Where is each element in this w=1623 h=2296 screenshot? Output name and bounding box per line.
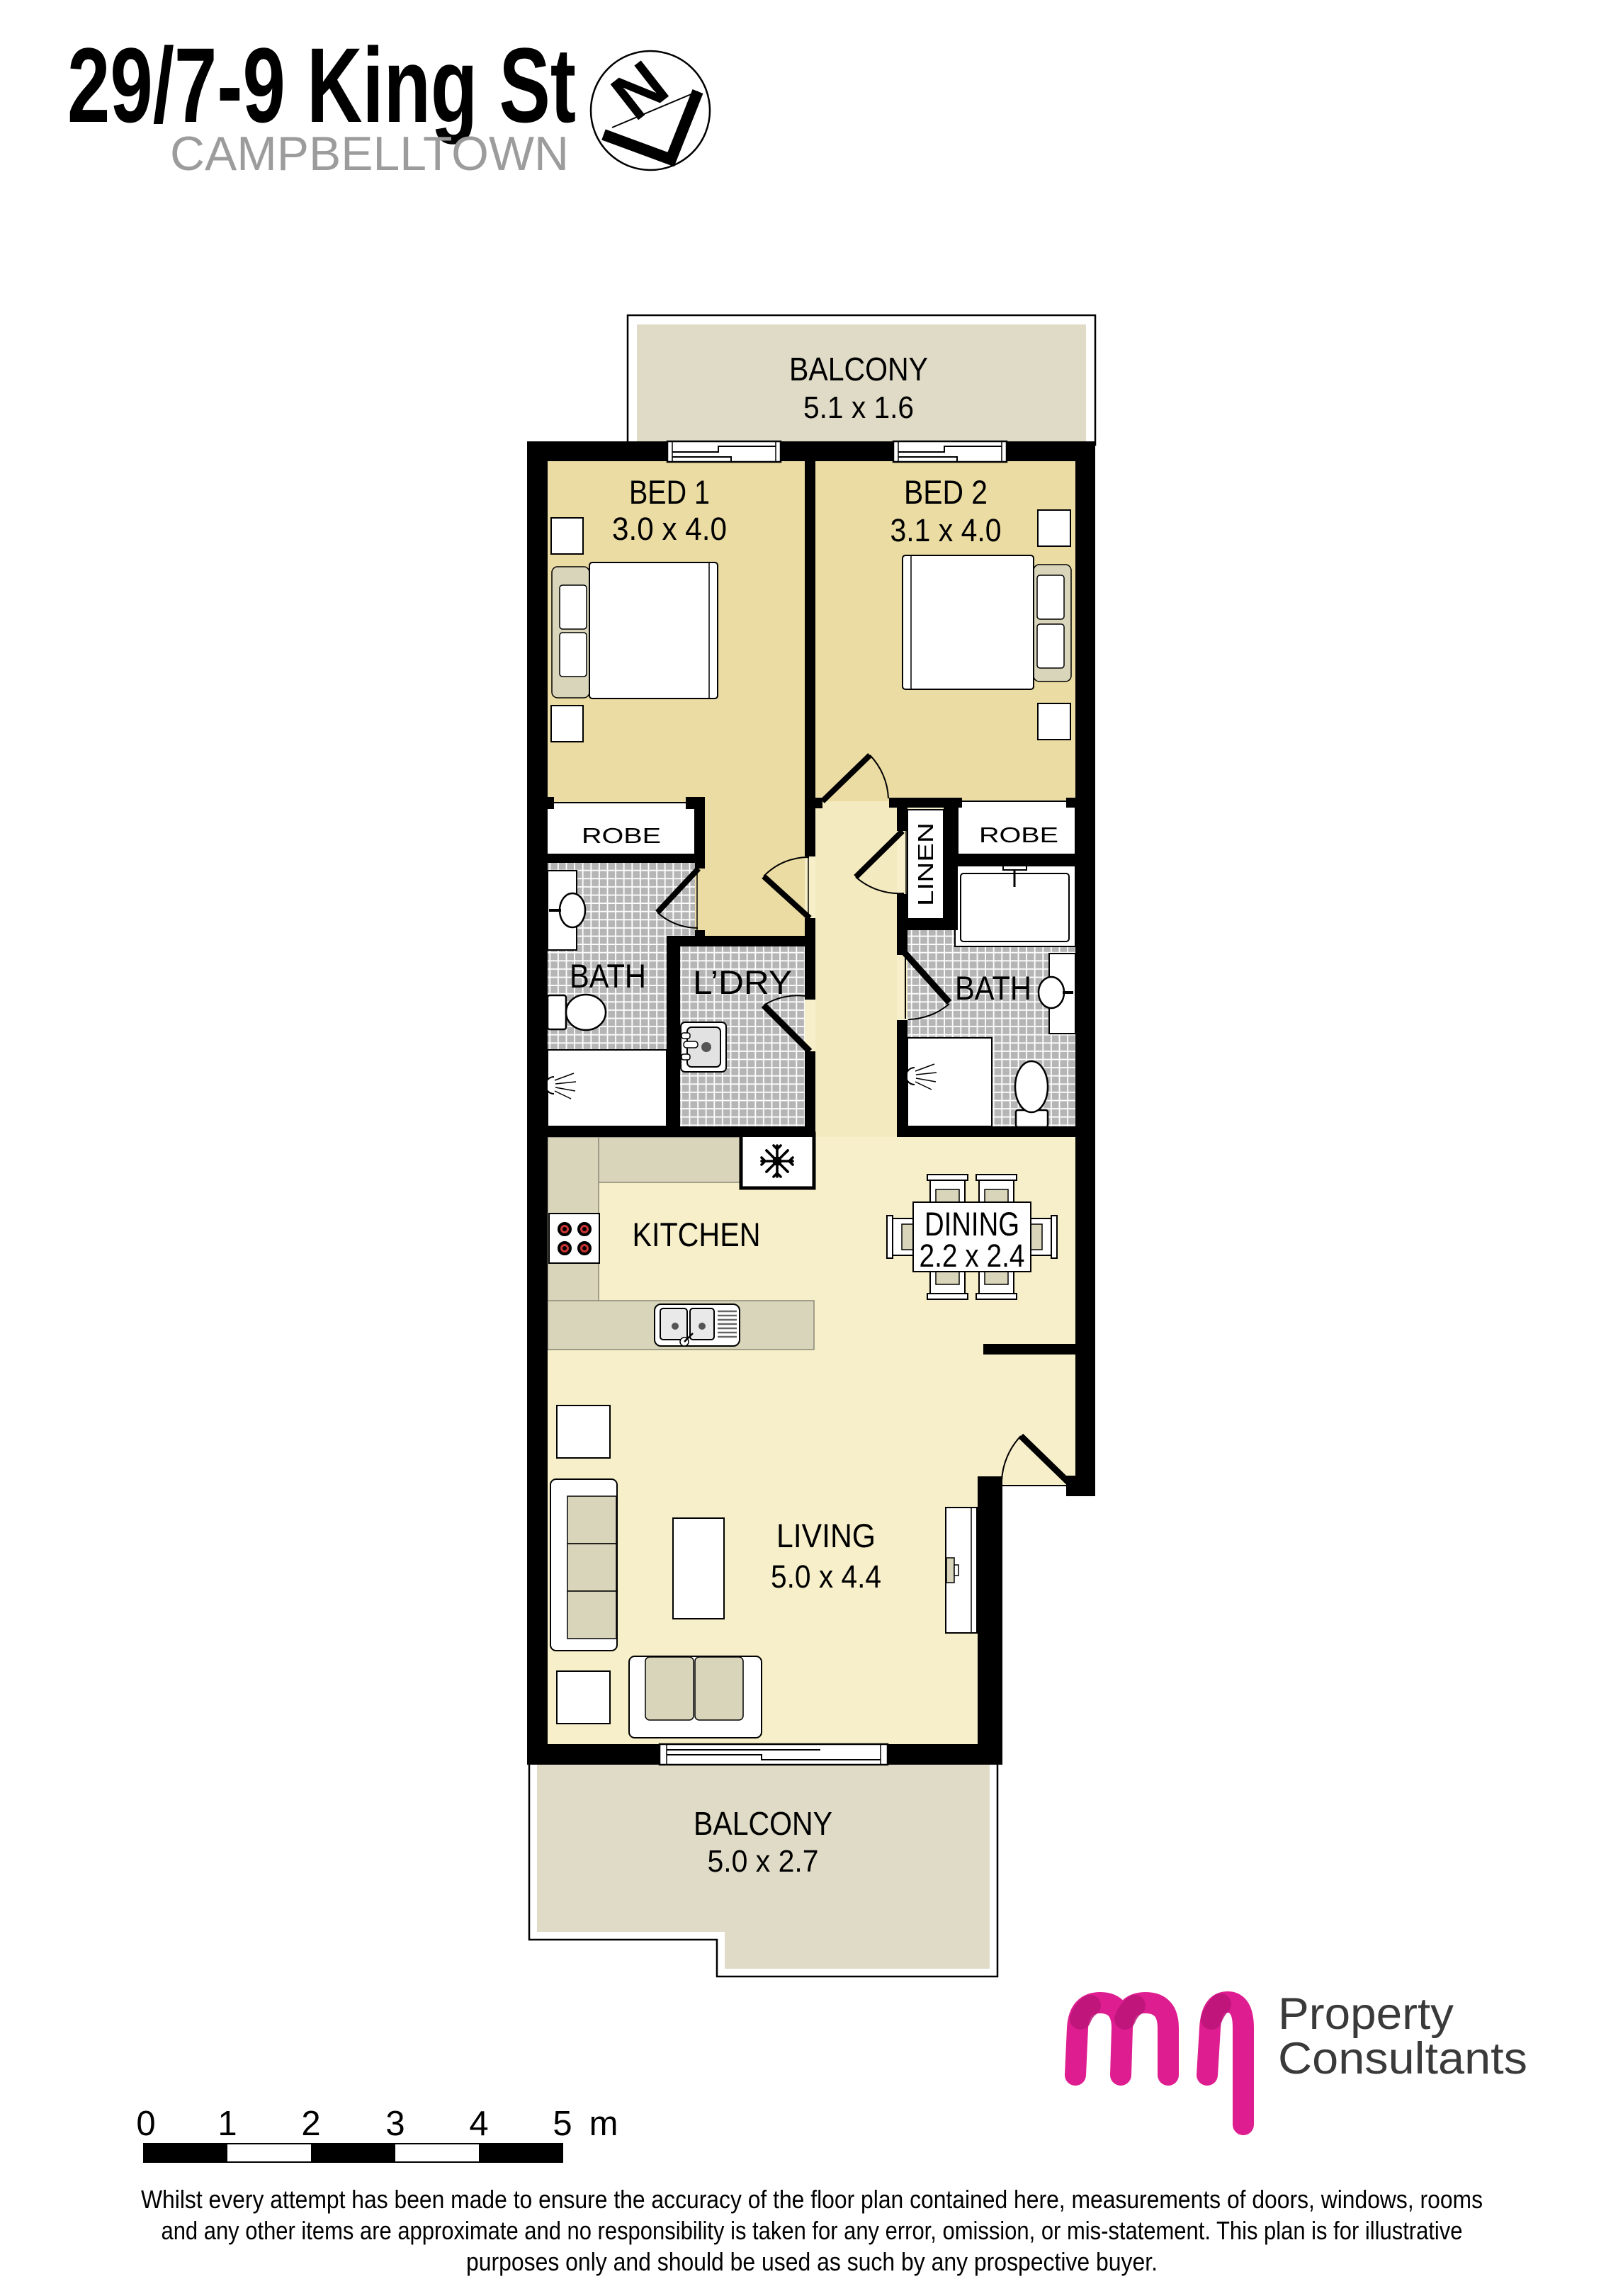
svg-text:2: 2 (301, 2105, 320, 2143)
svg-text:3.0 x 4.0: 3.0 x 4.0 (612, 511, 727, 547)
svg-text:ROBE: ROBE (979, 822, 1058, 847)
svg-text:CAMPBELLTOWN: CAMPBELLTOWN (170, 127, 569, 181)
svg-text:LIVING: LIVING (776, 1517, 876, 1554)
svg-text:LINEN: LINEN (913, 822, 938, 906)
svg-text:Whilst every attempt has been: Whilst every attempt has been made to en… (141, 2185, 1483, 2214)
svg-text:3: 3 (385, 2105, 405, 2143)
svg-text:BED 2: BED 2 (904, 473, 988, 511)
svg-text:BALCONY: BALCONY (789, 351, 928, 388)
svg-text:0: 0 (136, 2105, 155, 2143)
svg-text:3.1 x 4.0: 3.1 x 4.0 (890, 512, 1002, 548)
svg-text:KITCHEN: KITCHEN (633, 1216, 761, 1253)
svg-text:Property: Property (1278, 1989, 1454, 2039)
svg-text:BALCONY: BALCONY (694, 1805, 832, 1842)
svg-text:m: m (589, 2105, 618, 2143)
svg-text:5.0 x 4.4: 5.0 x 4.4 (771, 1559, 881, 1595)
svg-text:ROBE: ROBE (582, 823, 661, 848)
svg-text:BED 1: BED 1 (629, 473, 710, 511)
svg-text:2.2 x 2.4: 2.2 x 2.4 (920, 1238, 1025, 1274)
svg-text:BATH: BATH (570, 957, 646, 995)
svg-text:5.0 x 2.7: 5.0 x 2.7 (708, 1844, 819, 1879)
svg-text:BATH: BATH (955, 969, 1031, 1007)
svg-text:and any other items are approx: and any other items are approximate and … (162, 2216, 1463, 2245)
svg-text:1: 1 (217, 2105, 237, 2143)
svg-text:5: 5 (553, 2105, 572, 2143)
svg-text:5.1 x 1.6: 5.1 x 1.6 (803, 390, 914, 425)
svg-text:Consultants: Consultants (1278, 2034, 1527, 2083)
svg-text:4: 4 (469, 2105, 488, 2143)
svg-text:L’DRY: L’DRY (693, 963, 792, 1001)
svg-text:purposes only and should be us: purposes only and should be used as such… (466, 2247, 1158, 2276)
